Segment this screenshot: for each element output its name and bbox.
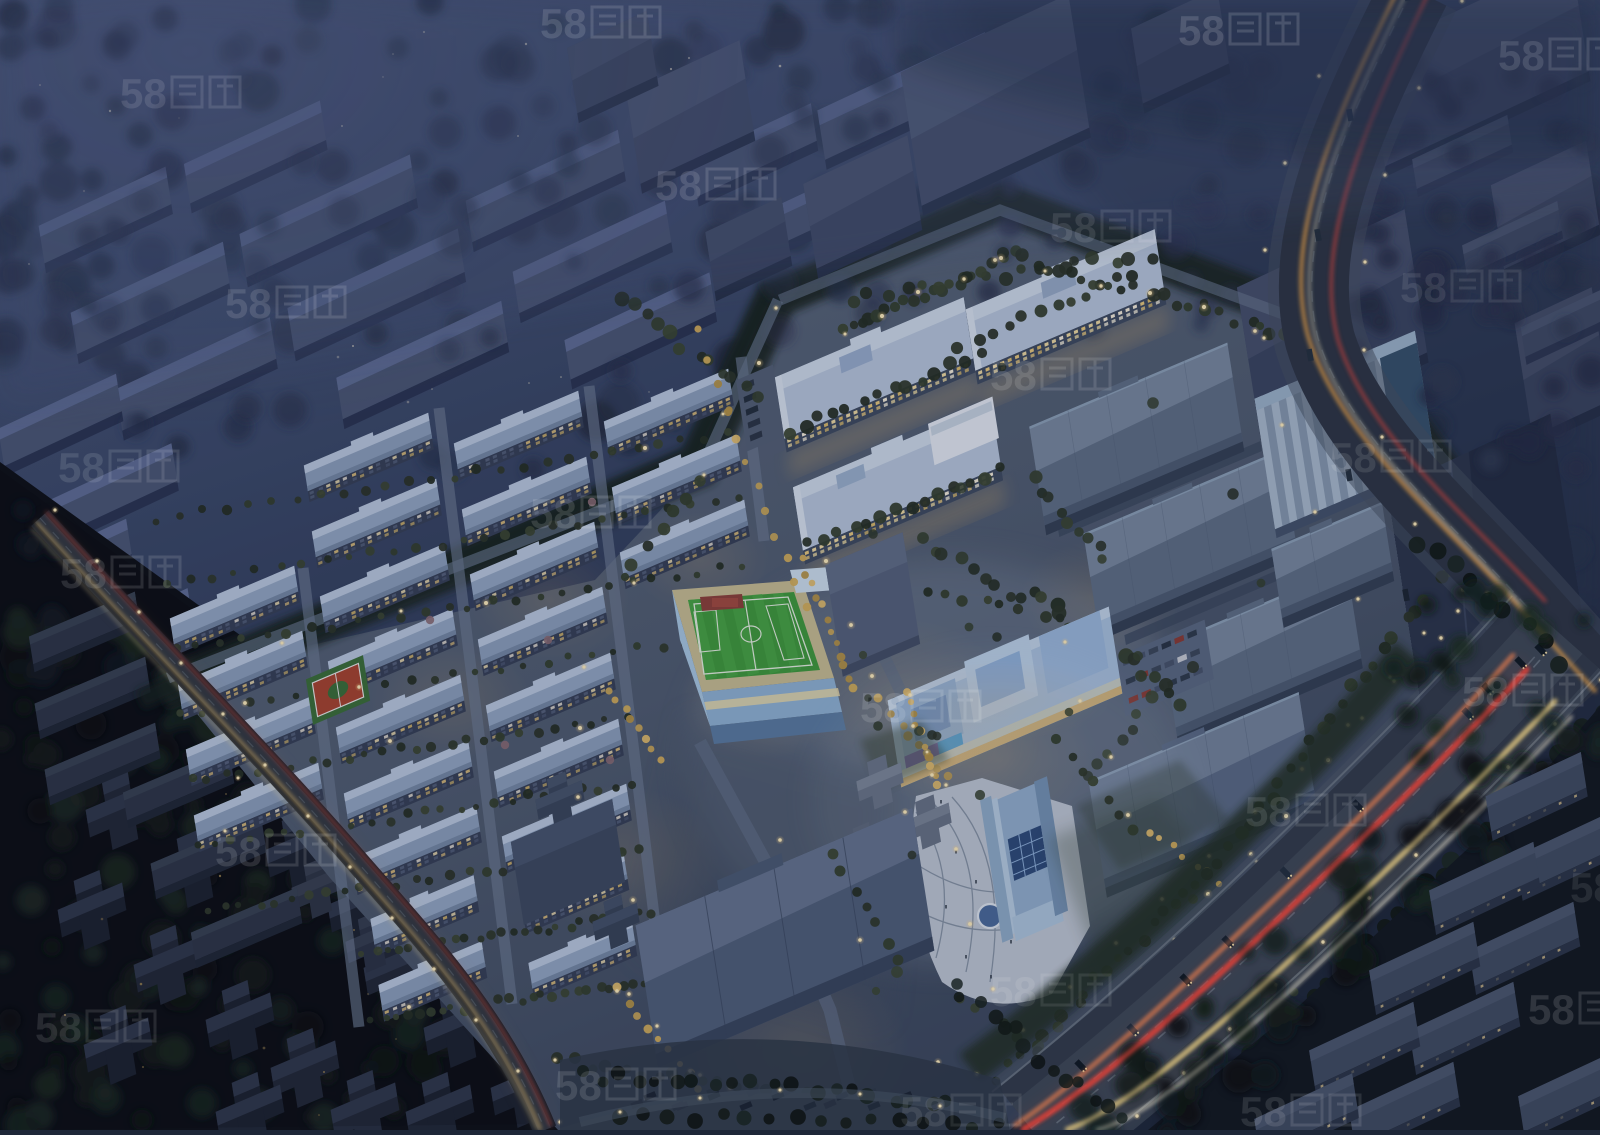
svg-text:58: 58 (120, 70, 167, 117)
svg-text:58: 58 (58, 444, 105, 491)
svg-text:58: 58 (1528, 986, 1575, 1033)
svg-text:58: 58 (540, 0, 587, 47)
svg-text:58: 58 (1050, 204, 1097, 251)
svg-text:58: 58 (900, 1088, 947, 1130)
svg-text:58: 58 (1245, 788, 1292, 835)
svg-text:58: 58 (530, 490, 577, 537)
svg-text:58: 58 (1570, 864, 1600, 911)
svg-text:58: 58 (1240, 1088, 1287, 1130)
svg-text:58: 58 (1400, 264, 1447, 311)
svg-text:58: 58 (215, 828, 262, 875)
svg-text:58: 58 (35, 1004, 82, 1051)
svg-text:58: 58 (1462, 668, 1509, 715)
svg-text:58: 58 (860, 684, 907, 731)
svg-text:58: 58 (655, 162, 702, 209)
svg-text:58: 58 (1330, 434, 1377, 481)
svg-text:58: 58 (1498, 32, 1545, 79)
svg-text:58: 58 (990, 352, 1037, 399)
svg-text:58: 58 (990, 968, 1037, 1015)
svg-text:58: 58 (1178, 7, 1225, 54)
svg-text:58: 58 (225, 280, 272, 327)
svg-text:58: 58 (555, 1062, 602, 1109)
svg-text:58: 58 (60, 550, 107, 597)
